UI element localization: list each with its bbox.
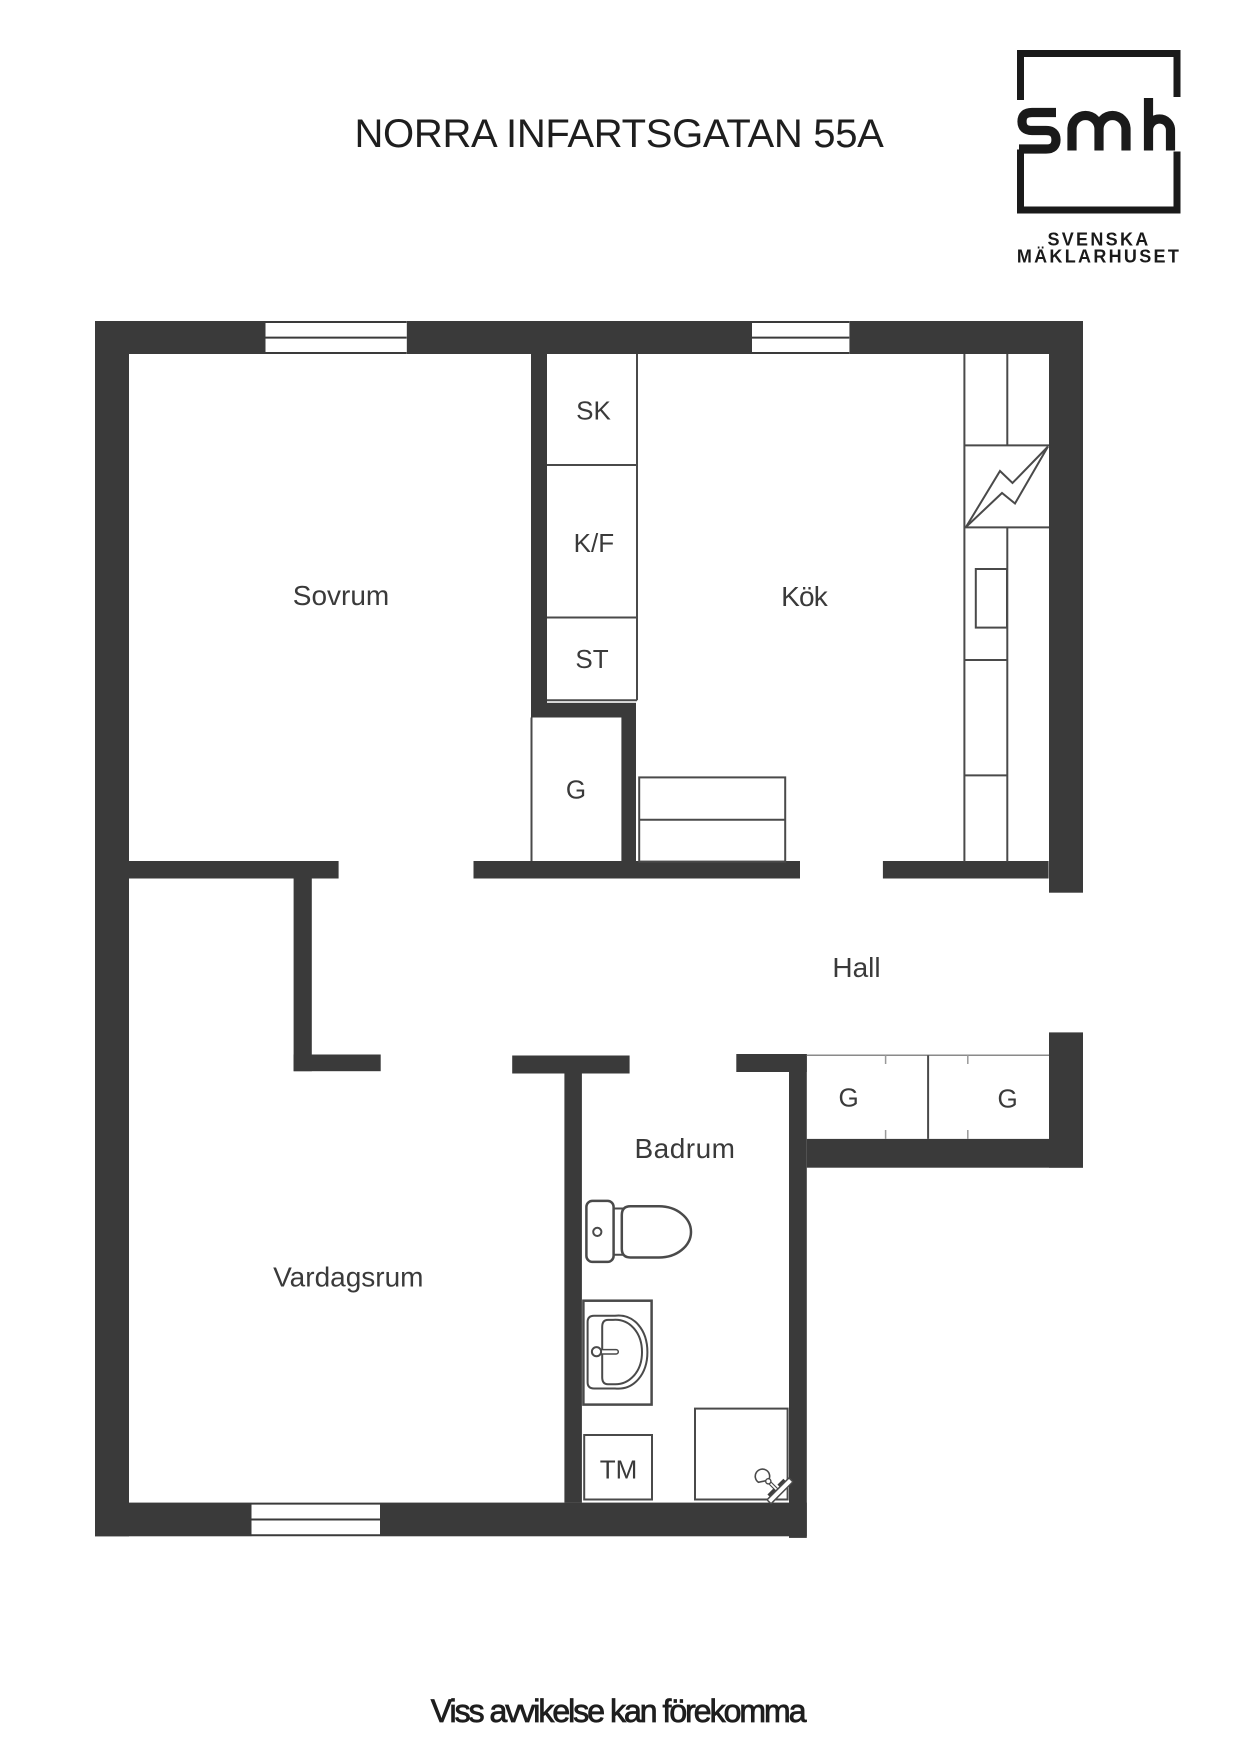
svg-text:ST: ST: [575, 644, 608, 674]
svg-text:Kök: Kök: [781, 581, 829, 612]
svg-text:Viss avvikelse kan förekomma: Viss avvikelse kan förekomma: [431, 1693, 807, 1729]
svg-text:Vardagsrum: Vardagsrum: [273, 1261, 423, 1292]
svg-text:SK: SK: [576, 396, 611, 426]
svg-text:Sovrum: Sovrum: [293, 580, 389, 611]
svg-text:Badrum: Badrum: [634, 1133, 735, 1164]
svg-text:NORRA INFARTSGATAN 55A: NORRA INFARTSGATAN 55A: [354, 112, 884, 156]
svg-text:Hall: Hall: [832, 952, 880, 983]
svg-text:MÄKLARHUSET: MÄKLARHUSET: [1017, 247, 1181, 267]
svg-text:TM: TM: [600, 1455, 638, 1485]
svg-text:G: G: [997, 1084, 1017, 1114]
svg-text:G: G: [566, 775, 586, 805]
svg-text:K/F: K/F: [574, 528, 614, 558]
svg-text:G: G: [838, 1083, 858, 1113]
